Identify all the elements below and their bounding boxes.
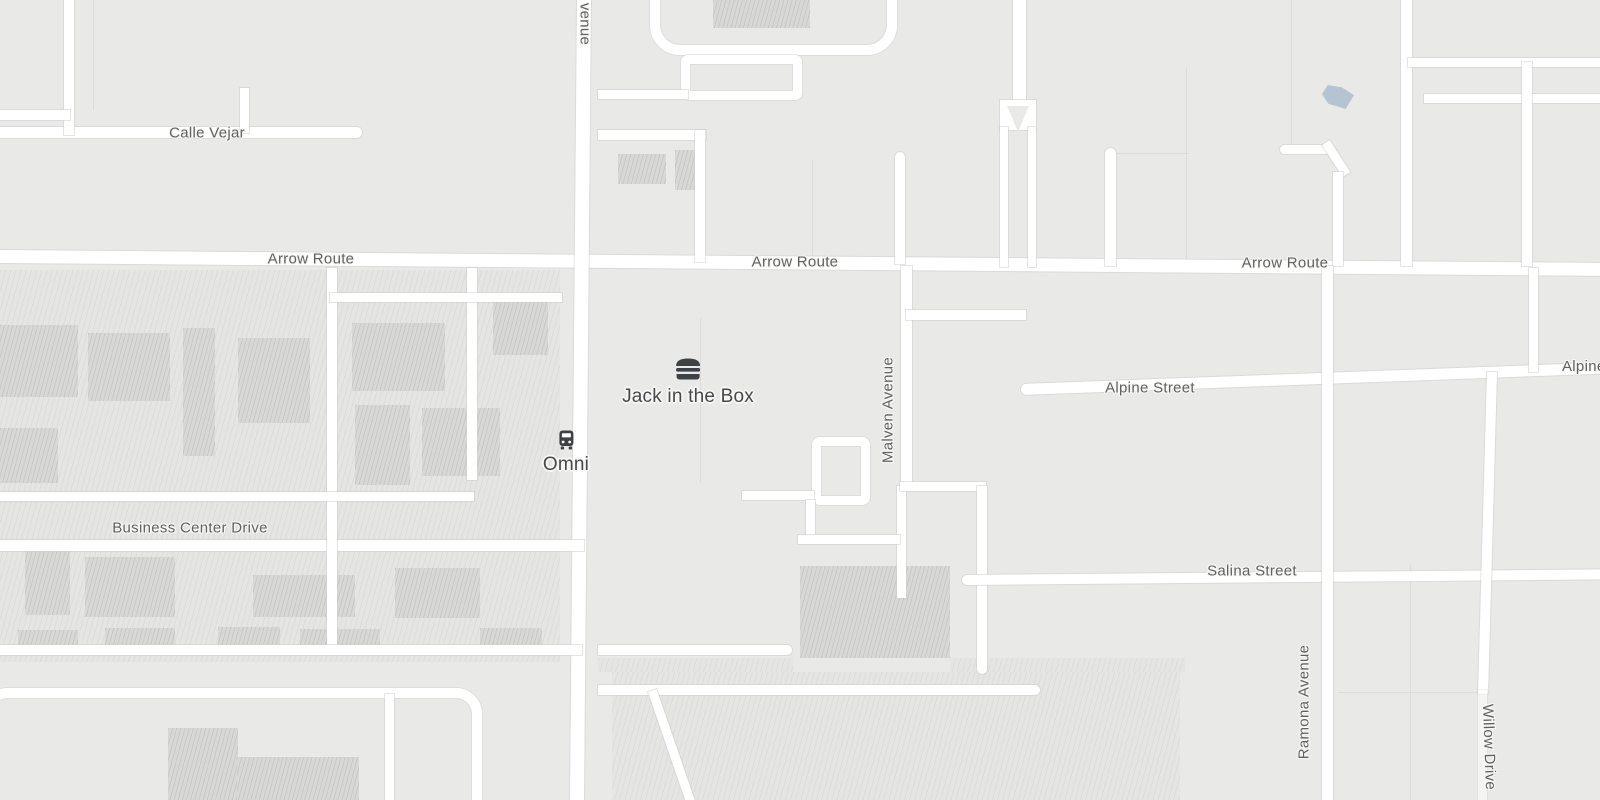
poi-jack-in-the-box[interactable]: Jack in the Box [622,358,754,408]
street-label-arrow-route: Arrow Route [752,254,839,271]
building [493,300,548,355]
street-label-malven-avenue: Malven Avenue [880,357,897,463]
road-minor [1529,268,1538,372]
road-avenue-vertical [570,0,591,800]
road-minor [1028,127,1036,267]
road-minor [742,491,814,500]
industrial-area [598,658,793,672]
parcel-line [1291,0,1292,145]
road-minor [598,90,688,99]
road-minor [1000,127,1008,267]
poi-label: Omni [543,454,589,476]
road-minor [1401,0,1412,266]
road-minor [0,645,582,655]
road-minor [327,268,337,650]
road-minor [1424,94,1600,103]
building [25,545,70,615]
parcel-line [1113,153,1189,154]
bus-icon [557,430,574,450]
road-minor [806,500,815,540]
street-label-arrow-route: Arrow Route [1242,255,1329,272]
road-minor [1280,145,1328,154]
road-minor [695,130,705,262]
road-loop [0,688,482,800]
road-minor [1333,172,1343,266]
building [253,575,355,617]
street-label-arrow-route: Arrow Route [268,251,355,268]
road-minor [598,130,706,140]
road-minor [598,645,792,655]
burger-icon [675,358,701,380]
road-minor [330,293,562,302]
map-canvas[interactable]: Arrow Route Arrow Route Arrow Route Call… [0,0,1600,800]
road-loop [650,0,897,55]
road-minor [385,694,394,800]
road-minor [900,482,986,491]
road-loop [812,437,870,505]
road-minor [598,685,1040,695]
street-label-ramona-avenue: Ramona Avenue [1296,645,1313,760]
parcel-line [812,160,813,260]
road-minor [906,310,1026,320]
building [395,568,480,618]
parcel-line [93,0,94,110]
street-label-salina-street: Salina Street [1207,563,1297,580]
road-minor [1013,0,1026,108]
building [618,154,666,184]
parcel-line [1410,565,1411,800]
road-minor [0,110,70,120]
street-label-alpine-street: Alpine Street [1105,380,1195,397]
building [183,328,215,456]
road-willow-drive [1478,372,1497,694]
parcel-line [1186,68,1187,260]
building [85,557,175,617]
road-business-center-drive [0,540,584,551]
building [0,428,58,483]
road-minor [1105,148,1116,266]
building [88,333,170,401]
building [800,566,950,658]
poi-label: Jack in the Box [622,386,754,408]
building [218,627,280,647]
road-malven-avenue [901,266,912,490]
street-label-business-center-drive: Business Center Drive [112,520,268,537]
building [238,338,310,423]
street-label-willow-drive: Willow Drive [1479,704,1499,791]
pond [1322,85,1354,109]
road-minor [1408,58,1600,67]
building [355,405,410,485]
building [422,408,500,476]
street-label-avenue-partial: venue [577,3,594,45]
poi-omni-transit[interactable]: Omni [543,430,589,476]
road-minor [1522,62,1532,266]
building [352,323,445,391]
road-ramona-avenue [1322,266,1333,800]
street-label-calle-vejar: Calle Vejar [169,125,245,142]
building [0,325,78,397]
road-minor [798,535,900,544]
road-minor [895,152,905,264]
road-minor [0,492,474,501]
parcel-line [1338,692,1484,693]
road-loop [681,55,802,100]
street-label-alpine-street-partial: Alpine Street [1562,358,1600,375]
